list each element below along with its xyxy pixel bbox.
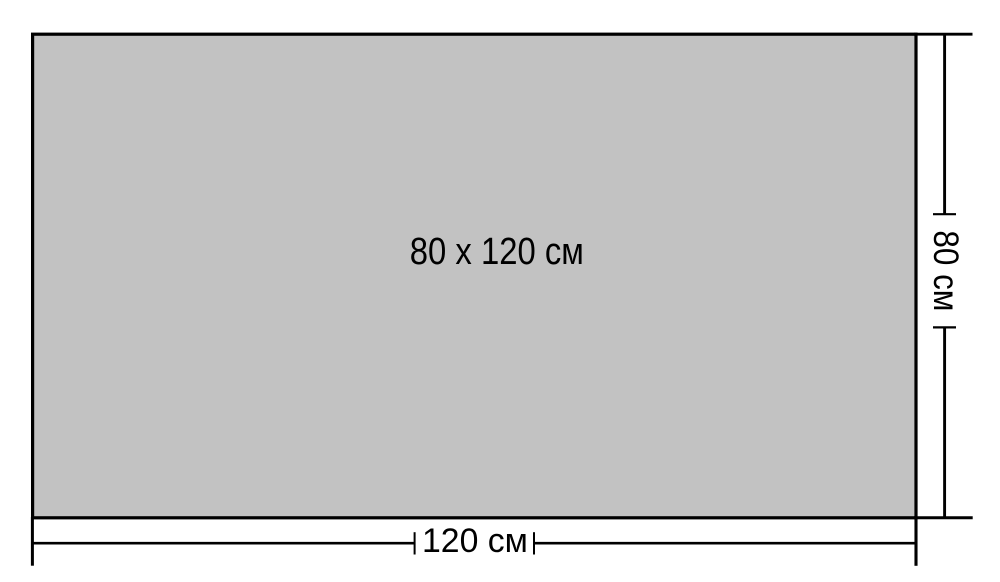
svg-text:80 см: 80 см <box>926 230 965 311</box>
svg-text:80 x 120 см: 80 x 120 см <box>410 231 584 273</box>
svg-text:120 см: 120 см <box>422 522 528 560</box>
